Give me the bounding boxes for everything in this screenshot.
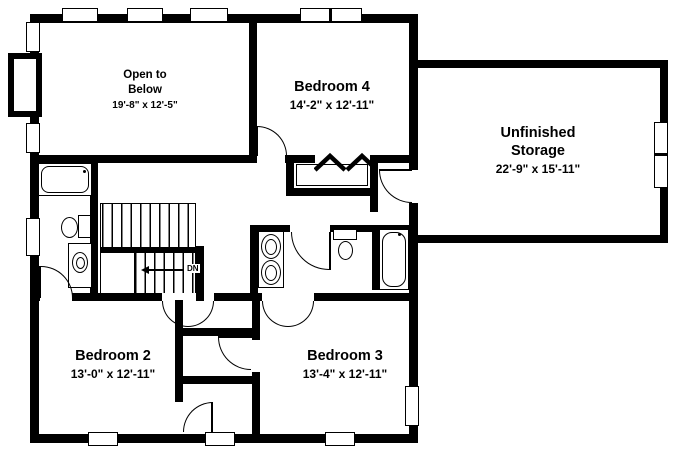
toilet2-bowl	[338, 241, 353, 260]
room-dimensions: 13'-4" x 12'-11"	[275, 367, 415, 381]
window	[26, 123, 40, 153]
room-label-bedroom2: Bedroom 2 13'-0" x 12'-11"	[43, 347, 183, 381]
room-dimensions: 13'-0" x 12'-11"	[43, 367, 183, 381]
window	[325, 432, 355, 446]
room-name: Bedroom 3	[275, 347, 415, 365]
room-dimensions: 19'-8" x 12'-5"	[75, 100, 215, 111]
window	[405, 386, 419, 426]
bathroom-door-swing	[291, 232, 329, 270]
room-label-bedroom4: Bedroom 4 14'-2" x 12'-11"	[262, 78, 402, 112]
wall-hall-south-b	[72, 293, 162, 301]
floor-plan: DN Open to Below 19'-8" x 12'-5"	[0, 0, 681, 458]
stairs-upper-treads	[102, 204, 195, 247]
bathtub-faucet	[83, 170, 86, 173]
window	[62, 8, 98, 22]
wall-hall-south-d	[314, 293, 418, 301]
room-label-unfinished-storage: Unfinished Storage 22'-9" x 15'-11"	[458, 124, 618, 176]
vanity-sink-2-inner	[265, 265, 277, 281]
stairs-arrow-line	[148, 269, 184, 271]
wall-storage-bottom	[414, 235, 668, 243]
wall-closet23-top	[175, 328, 260, 336]
wall-closet4-bottom	[286, 188, 378, 196]
wall-stairs-east	[196, 246, 204, 301]
room-name: Bedroom 4	[262, 78, 402, 96]
room-dimensions: 22'-9" x 15'-11"	[458, 162, 618, 176]
window-mullion	[654, 153, 668, 156]
chimney	[8, 53, 42, 117]
bathtub-inner	[41, 166, 89, 193]
wall-closet23-mid	[175, 376, 260, 384]
wall-storage-top	[414, 60, 668, 68]
toilet-tank	[78, 215, 91, 238]
wall-bedroom4-south-b	[378, 155, 418, 163]
window	[127, 8, 163, 22]
window-mullion	[329, 8, 332, 22]
room-label-open-to-below: Open to Below 19'-8" x 12'-5"	[75, 68, 215, 111]
wall-otb-south	[30, 155, 257, 163]
bathroom-door-leaf	[329, 232, 331, 270]
stairs-direction-label: DN	[186, 264, 200, 273]
bedroom4-door-swing	[257, 126, 287, 156]
window	[26, 218, 40, 256]
storage-door-swing	[379, 170, 412, 203]
vanity-sink-1-inner	[265, 239, 277, 255]
room-name: Open to Below	[75, 68, 215, 98]
window	[26, 22, 40, 52]
closet2-door-swing	[183, 402, 213, 432]
window	[190, 8, 228, 22]
sink-bowl-inner	[76, 257, 85, 269]
closet-door-swing	[218, 337, 251, 370]
toilet2-tank	[333, 229, 357, 240]
window	[88, 432, 118, 446]
bathtub2-faucet	[398, 233, 401, 236]
room-label-bedroom3: Bedroom 3 13'-4" x 12'-11"	[275, 347, 415, 381]
bedroom3-door-swing	[262, 301, 314, 327]
room-dimensions: 14'-2" x 12'-11"	[262, 98, 402, 112]
wall-bath2-divider	[372, 230, 379, 290]
toilet-bowl	[61, 217, 78, 238]
room-name: Unfinished Storage	[458, 124, 618, 160]
bifold-door-icon	[314, 152, 378, 172]
window	[205, 432, 235, 446]
wall-bath2-west	[250, 225, 258, 301]
wall-outer-right-upper	[409, 14, 418, 170]
bathtub2-inner	[382, 232, 406, 287]
room-name: Bedroom 2	[43, 347, 183, 365]
bedroom2-door-swing	[162, 301, 214, 327]
